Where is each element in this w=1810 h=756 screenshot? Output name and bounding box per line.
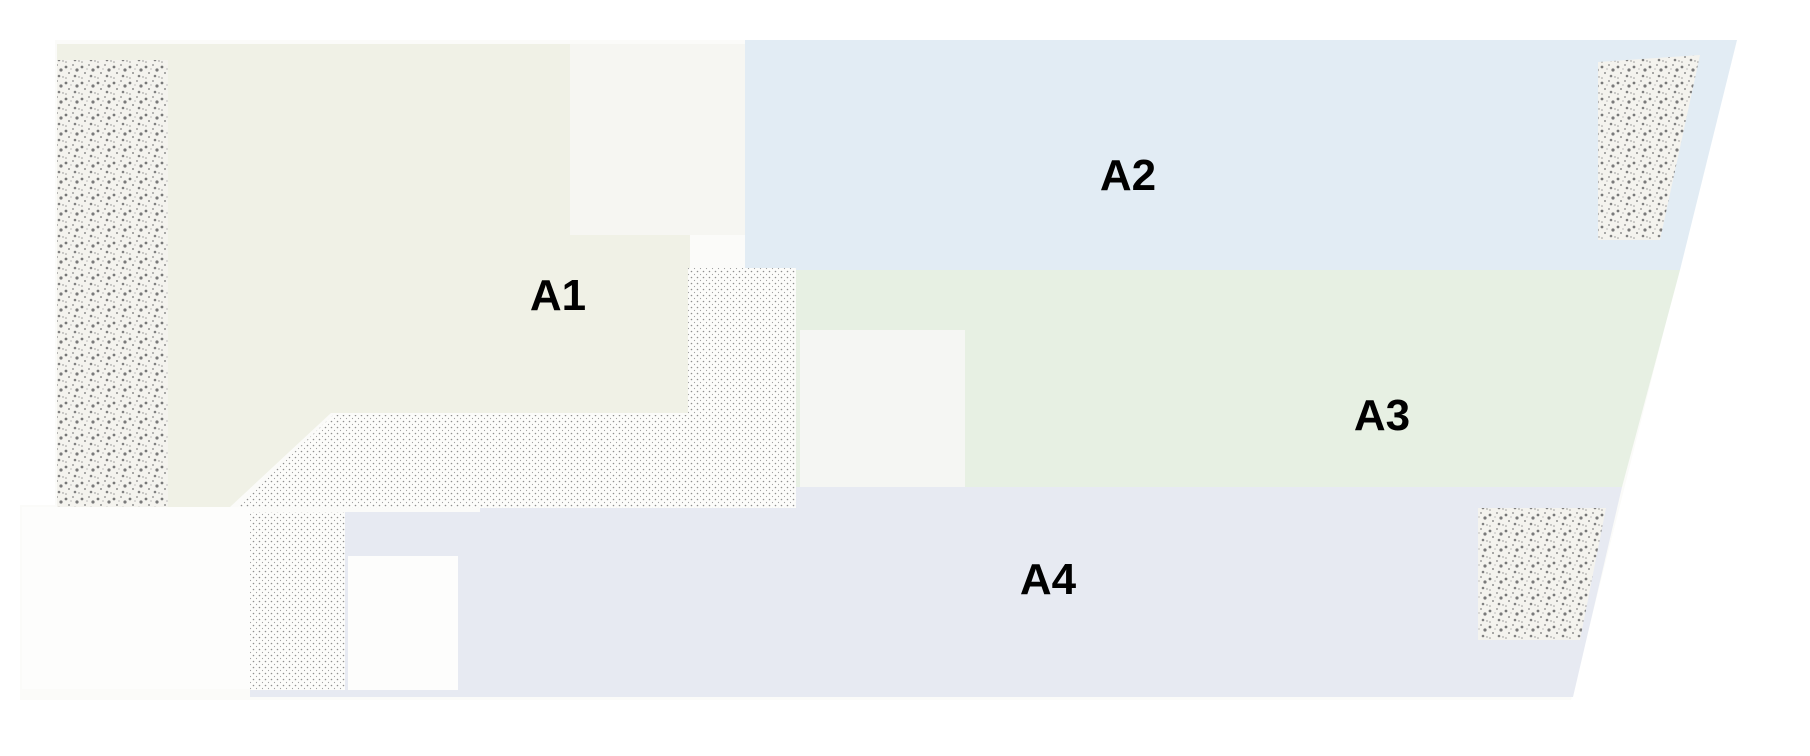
svg-text:A3: A3 — [1354, 391, 1410, 440]
svg-text:A4: A4 — [1020, 555, 1077, 604]
svg-text:A2: A2 — [1100, 151, 1156, 200]
svg-text:A1: A1 — [530, 271, 586, 320]
